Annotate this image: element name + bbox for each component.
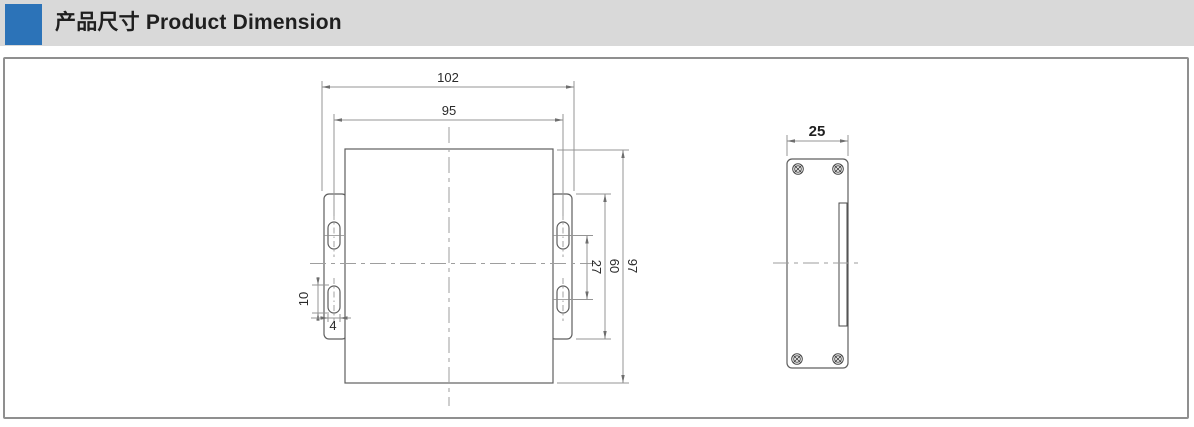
screw-icon [793, 164, 804, 175]
dimension-slot-spacing: 27 [570, 236, 604, 300]
front-view: 102 95 97 60 [296, 70, 640, 406]
dim-label-27: 27 [589, 260, 604, 274]
dim-label-102: 102 [437, 70, 459, 85]
screw-icon [792, 354, 803, 365]
dim-label-95: 95 [442, 103, 456, 118]
screw-icon [833, 354, 844, 365]
dim-label-25: 25 [809, 123, 826, 140]
side-view: 25 [773, 123, 861, 368]
dim-label-10: 10 [296, 292, 311, 306]
dimension-drawing: 102 95 97 60 [0, 0, 1194, 427]
dim-label-60: 60 [607, 259, 622, 273]
dim-label-97: 97 [625, 259, 640, 273]
dimension-depth: 25 [787, 123, 848, 156]
screw-icon [833, 164, 844, 175]
dim-label-4: 4 [329, 318, 336, 333]
